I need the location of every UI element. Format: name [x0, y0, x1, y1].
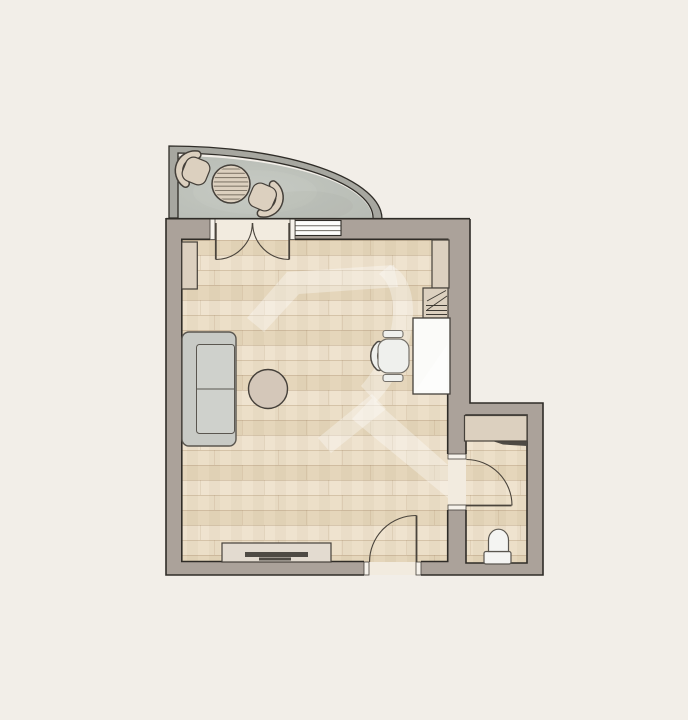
balcony-window — [295, 221, 341, 236]
bathroom-frame-top — [448, 454, 466, 459]
chair-armrest-bottom — [383, 375, 403, 382]
toilet-bowl — [489, 529, 509, 551]
bathroom-cabinet — [465, 416, 528, 442]
chair-seat — [378, 339, 409, 373]
bathroom-frame-bottom — [448, 505, 466, 510]
wardrobe — [432, 240, 449, 288]
tv-stand — [222, 543, 331, 562]
toilet-cistern — [484, 552, 511, 565]
entrance-frame-left — [364, 562, 369, 575]
floor-plan-svg — [0, 0, 688, 720]
chair-armrest-top — [383, 331, 403, 338]
entrance-threshold — [369, 562, 416, 575]
tv-base — [259, 558, 291, 561]
balcony-door-frame-right — [290, 219, 295, 240]
entrance-frame-right — [416, 562, 421, 575]
sofa — [182, 332, 236, 446]
floor-plan-page — [0, 0, 688, 720]
tv — [245, 552, 308, 557]
balcony-door-frame-left — [210, 219, 215, 240]
bathroom-door-threshold — [448, 459, 466, 505]
hatched-shelf-unit — [423, 288, 448, 318]
coffee-table — [249, 370, 288, 409]
desk — [413, 318, 450, 394]
side-cabinet — [182, 242, 198, 289]
